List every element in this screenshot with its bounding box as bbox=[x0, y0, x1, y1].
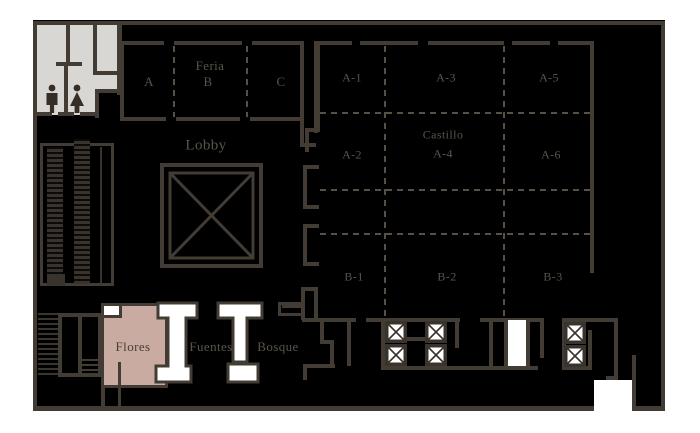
room-label-a3[interactable]: A-3 bbox=[436, 71, 456, 86]
room-label-bosque[interactable]: Bosque bbox=[257, 339, 298, 355]
room-label-a2[interactable]: A-2 bbox=[342, 148, 362, 163]
elevator-icon bbox=[425, 321, 447, 343]
elevator-icon bbox=[564, 322, 586, 344]
room-label-a1[interactable]: A-1 bbox=[342, 71, 362, 86]
elevator-icon bbox=[425, 344, 447, 366]
room-label-castillo[interactable]: Castillo bbox=[423, 128, 464, 143]
room-label-flores[interactable]: Flores bbox=[116, 339, 151, 355]
room-label-b1[interactable]: B-1 bbox=[344, 270, 363, 285]
room-label-feria-b[interactable]: B bbox=[203, 74, 212, 90]
elevator-bank bbox=[385, 321, 586, 367]
room-label-feria-c[interactable]: C bbox=[276, 74, 285, 90]
elevator-icon bbox=[385, 344, 407, 366]
room-label-feria-a[interactable]: A bbox=[144, 74, 154, 90]
elevator-icon bbox=[385, 321, 407, 343]
room-label-b2[interactable]: B-2 bbox=[437, 270, 456, 285]
room-label-a5[interactable]: A-5 bbox=[539, 71, 559, 86]
room-label-a6[interactable]: A-6 bbox=[541, 148, 561, 163]
room-label-fuentes[interactable]: Fuentes bbox=[189, 339, 232, 355]
mens-restroom-icon bbox=[46, 85, 57, 113]
lobby-atrium-icon bbox=[162, 165, 261, 266]
womens-restroom-icon bbox=[70, 85, 84, 113]
room-label-b3[interactable]: B-3 bbox=[543, 270, 562, 285]
elevator-icon bbox=[564, 345, 586, 367]
room-label-feria[interactable]: Feria bbox=[196, 58, 225, 74]
plan-features-layer bbox=[0, 0, 700, 433]
room-label-a4[interactable]: A-4 bbox=[433, 147, 453, 162]
bosque-column-base bbox=[228, 364, 258, 382]
room-label-lobby[interactable]: Lobby bbox=[185, 138, 226, 155]
floor-plan: A Feria B C Lobby A-1 A-3 A-5 A-2 Castil… bbox=[0, 0, 700, 433]
